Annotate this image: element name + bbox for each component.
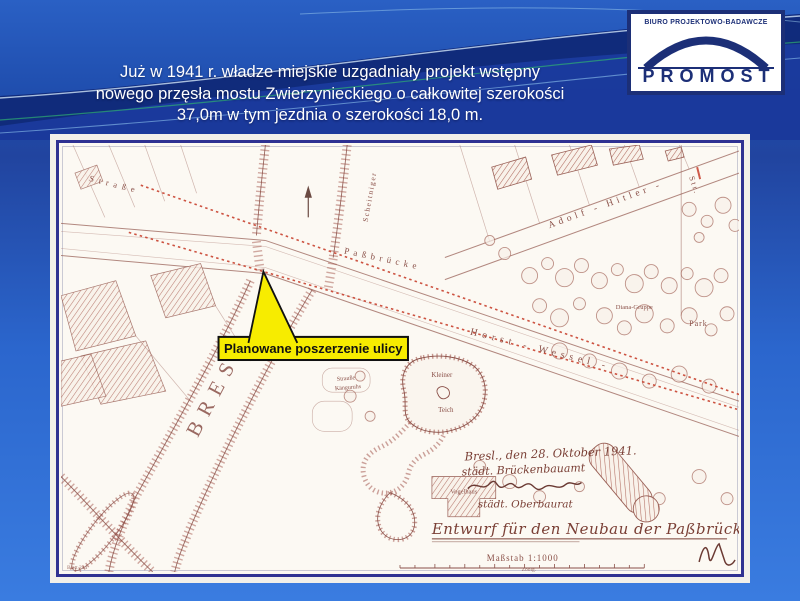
- title-line-2: nowego przęsła mostu Zwierzynieckiego o …: [30, 84, 630, 106]
- map-frame: BRESL Straße Paßbrücke Adolf - Hitler - …: [56, 140, 744, 577]
- title-line-1: Już w 1941 r. władze miejskie uzgadniały…: [30, 62, 630, 84]
- annotation-title: Entwurf für den Neubau der Paßbrücke.: [431, 520, 739, 538]
- pond-label-line1: Kleiner: [431, 371, 453, 379]
- label-diana-gruppe: Diana-Gruppe: [616, 304, 653, 311]
- bridge-arch-icon: [634, 27, 778, 69]
- label-park: Park: [689, 319, 708, 328]
- map-panel: BRESL Straße Paßbrücke Adolf - Hitler - …: [50, 134, 750, 583]
- logo-name: PROMOST: [631, 66, 781, 87]
- label-blatt: Blatt 244: [67, 565, 87, 571]
- callout-label: Planowane poszerzenie ulicy: [224, 341, 403, 356]
- promost-logo: BIURO PROJEKTOWO-BADAWCZE PROMOST: [627, 10, 785, 95]
- annotation-rank: städt. Oberbaurat: [478, 499, 574, 511]
- pond-label-line2: Teich: [438, 406, 454, 414]
- logo-subtitle: BIURO PROJEKTOWO-BADAWCZE: [631, 19, 781, 26]
- scale-label: Maßstab 1:1000: [487, 553, 559, 563]
- page-title: Już w 1941 r. władze miejskie uzgadniały…: [30, 62, 630, 127]
- title-line-3: 37,0m w tym jezdnia o szerokości 18,0 m.: [30, 105, 630, 127]
- historic-map: BRESL Straße Paßbrücke Adolf - Hitler - …: [61, 145, 739, 572]
- label-vogelhaus: Vogelhaus: [450, 489, 477, 496]
